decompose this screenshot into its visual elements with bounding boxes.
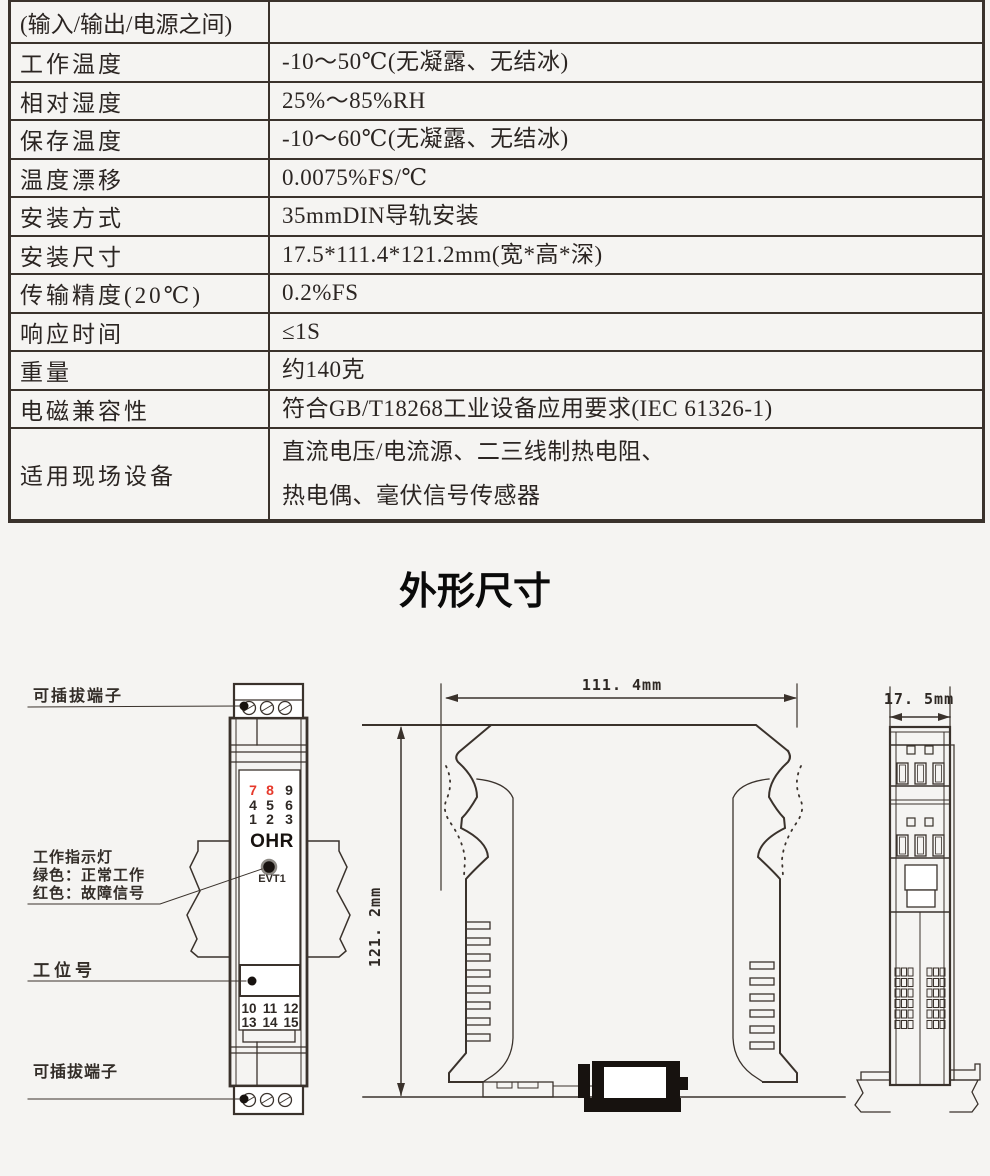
label-indicator-title: 工作指示灯: [33, 848, 113, 866]
din-rail-right: [307, 841, 350, 957]
table-row: 相对湿度 25%～85%RH: [11, 81, 982, 120]
din-clip: [578, 1061, 688, 1112]
terminal-block-top: [234, 684, 303, 718]
device-front-view: 111. 4mm: [363, 676, 845, 1112]
din-rail-left: [187, 841, 230, 957]
spec-value: -10～60℃(无凝露、无结冰): [270, 121, 982, 158]
spec-label: 电磁兼容性: [11, 391, 270, 428]
spec-label: 适用现场设备: [11, 429, 270, 519]
spec-value: 直流电压/电流源、二三线制热电阻、 热电偶、毫伏信号传感器: [270, 429, 982, 519]
label-indicator-green: 绿色：正常工作: [33, 866, 145, 884]
spec-label: 安装方式: [11, 198, 270, 235]
terminal-number: 11: [263, 1001, 278, 1016]
top-terminal-numbers: 7 8 9 4 5 6 1 2 3: [249, 782, 293, 827]
spec-value: 约140克: [270, 352, 982, 389]
terminal-number: 1: [249, 811, 257, 827]
terminal-number: 10: [241, 1001, 256, 1016]
spec-value: [270, 2, 982, 42]
table-row: 工作温度 -10～50℃(无凝露、无结冰): [11, 42, 982, 81]
terminal-number: 13: [241, 1015, 257, 1030]
led-label: EVT1: [258, 873, 286, 885]
spec-label: 工作温度: [11, 44, 270, 81]
table-row: 安装尺寸 17.5*111.4*121.2mm(宽*高*深): [11, 235, 982, 274]
spec-label: 重量: [11, 352, 270, 389]
spec-value: 0.0075%FS/℃: [270, 160, 982, 197]
terminal-number: 3: [285, 811, 293, 827]
table-row: (输入/输出/电源之间): [11, 2, 982, 42]
spec-label: 安装尺寸: [11, 237, 270, 274]
table-row: 响应时间 ≤1S: [11, 312, 982, 351]
terminal-number: 15: [283, 1015, 299, 1030]
label-pluggable-terminal-bottom: 可插拔端子: [33, 1062, 118, 1081]
terminal-number: 8: [266, 782, 274, 798]
status-led: [262, 860, 276, 874]
depth-dimension: 17. 5mm: [884, 690, 954, 708]
label-pluggable-terminal-top: 可插拔端子: [33, 686, 123, 705]
table-row: 适用现场设备 直流电压/电流源、二三线制热电阻、 热电偶、毫伏信号传感器: [11, 427, 982, 519]
label-indicator-red: 红色：故障信号: [33, 884, 145, 902]
spec-label: 温度漂移: [11, 160, 270, 197]
vent-slots-right: [750, 962, 774, 1049]
spec-value: 25%～85%RH: [270, 83, 982, 120]
brand-logo: OHR: [250, 831, 294, 852]
spec-value: 符合GB/T18268工业设备应用要求(IEC 61326-1): [270, 391, 982, 428]
annotations: 可插拔端子 工作指示灯 绿色：正常工作 红色：故障信号 工位号 可插拔端子: [28, 686, 262, 1099]
terminal-number: 9: [285, 782, 293, 798]
spec-label: 保存温度: [11, 121, 270, 158]
table-row: 传输精度(20℃) 0.2%FS: [11, 273, 982, 312]
terminal-number: 12: [283, 1001, 298, 1016]
spec-label: 相对湿度: [11, 83, 270, 120]
terminal-number: 14: [262, 1015, 278, 1030]
spec-table: (输入/输出/电源之间) 工作温度 -10～50℃(无凝露、无结冰) 相对湿度 …: [8, 0, 985, 523]
spec-value: 0.2%FS: [270, 275, 982, 312]
table-row: 保存温度 -10～60℃(无凝露、无结冰): [11, 119, 982, 158]
spec-value: -10～50℃(无凝露、无结冰): [270, 44, 982, 81]
label-station-tag: 工位号: [33, 960, 96, 980]
spec-label: 传输精度(20℃): [11, 275, 270, 312]
table-row: 重量 约140克: [11, 350, 982, 389]
spec-value: 17.5*111.4*121.2mm(宽*高*深): [270, 237, 982, 274]
spec-value: ≤1S: [270, 314, 982, 351]
width-dimension: 111. 4mm: [582, 676, 662, 694]
bottom-terminal-numbers: 10 11 12 13 14 15: [241, 1001, 299, 1030]
terminal-number: 2: [266, 811, 274, 827]
spec-sheet-page: (输入/输出/电源之间) 工作温度 -10～50℃(无凝露、无结冰) 相对湿度 …: [0, 0, 990, 1176]
height-dimension: 121. 2mm: [366, 887, 384, 967]
vent-slots-left: [466, 922, 490, 1041]
device-profile-view: 17. 5mm: [855, 687, 980, 1112]
dimension-diagram: 7 8 9 4 5 6 1 2 3 OHR EVT1 10 11: [0, 640, 990, 1176]
station-tag-window: [240, 965, 300, 996]
table-row: 温度漂移 0.0075%FS/℃: [11, 158, 982, 197]
spec-label: 响应时间: [11, 314, 270, 351]
spec-label: (输入/输出/电源之间): [11, 2, 270, 42]
device-side-view: 7 8 9 4 5 6 1 2 3 OHR EVT1 10 11: [187, 684, 350, 1114]
profile-latch: [905, 865, 937, 907]
terminal-block-bottom: [234, 1086, 303, 1114]
spec-value: 35mmDIN导轨安装: [270, 198, 982, 235]
table-row: 安装方式 35mmDIN导轨安装: [11, 196, 982, 235]
section-title: 外形尺寸: [0, 560, 950, 615]
table-row: 电磁兼容性 符合GB/T18268工业设备应用要求(IEC 61326-1): [11, 389, 982, 428]
terminal-number: 7: [249, 782, 257, 798]
